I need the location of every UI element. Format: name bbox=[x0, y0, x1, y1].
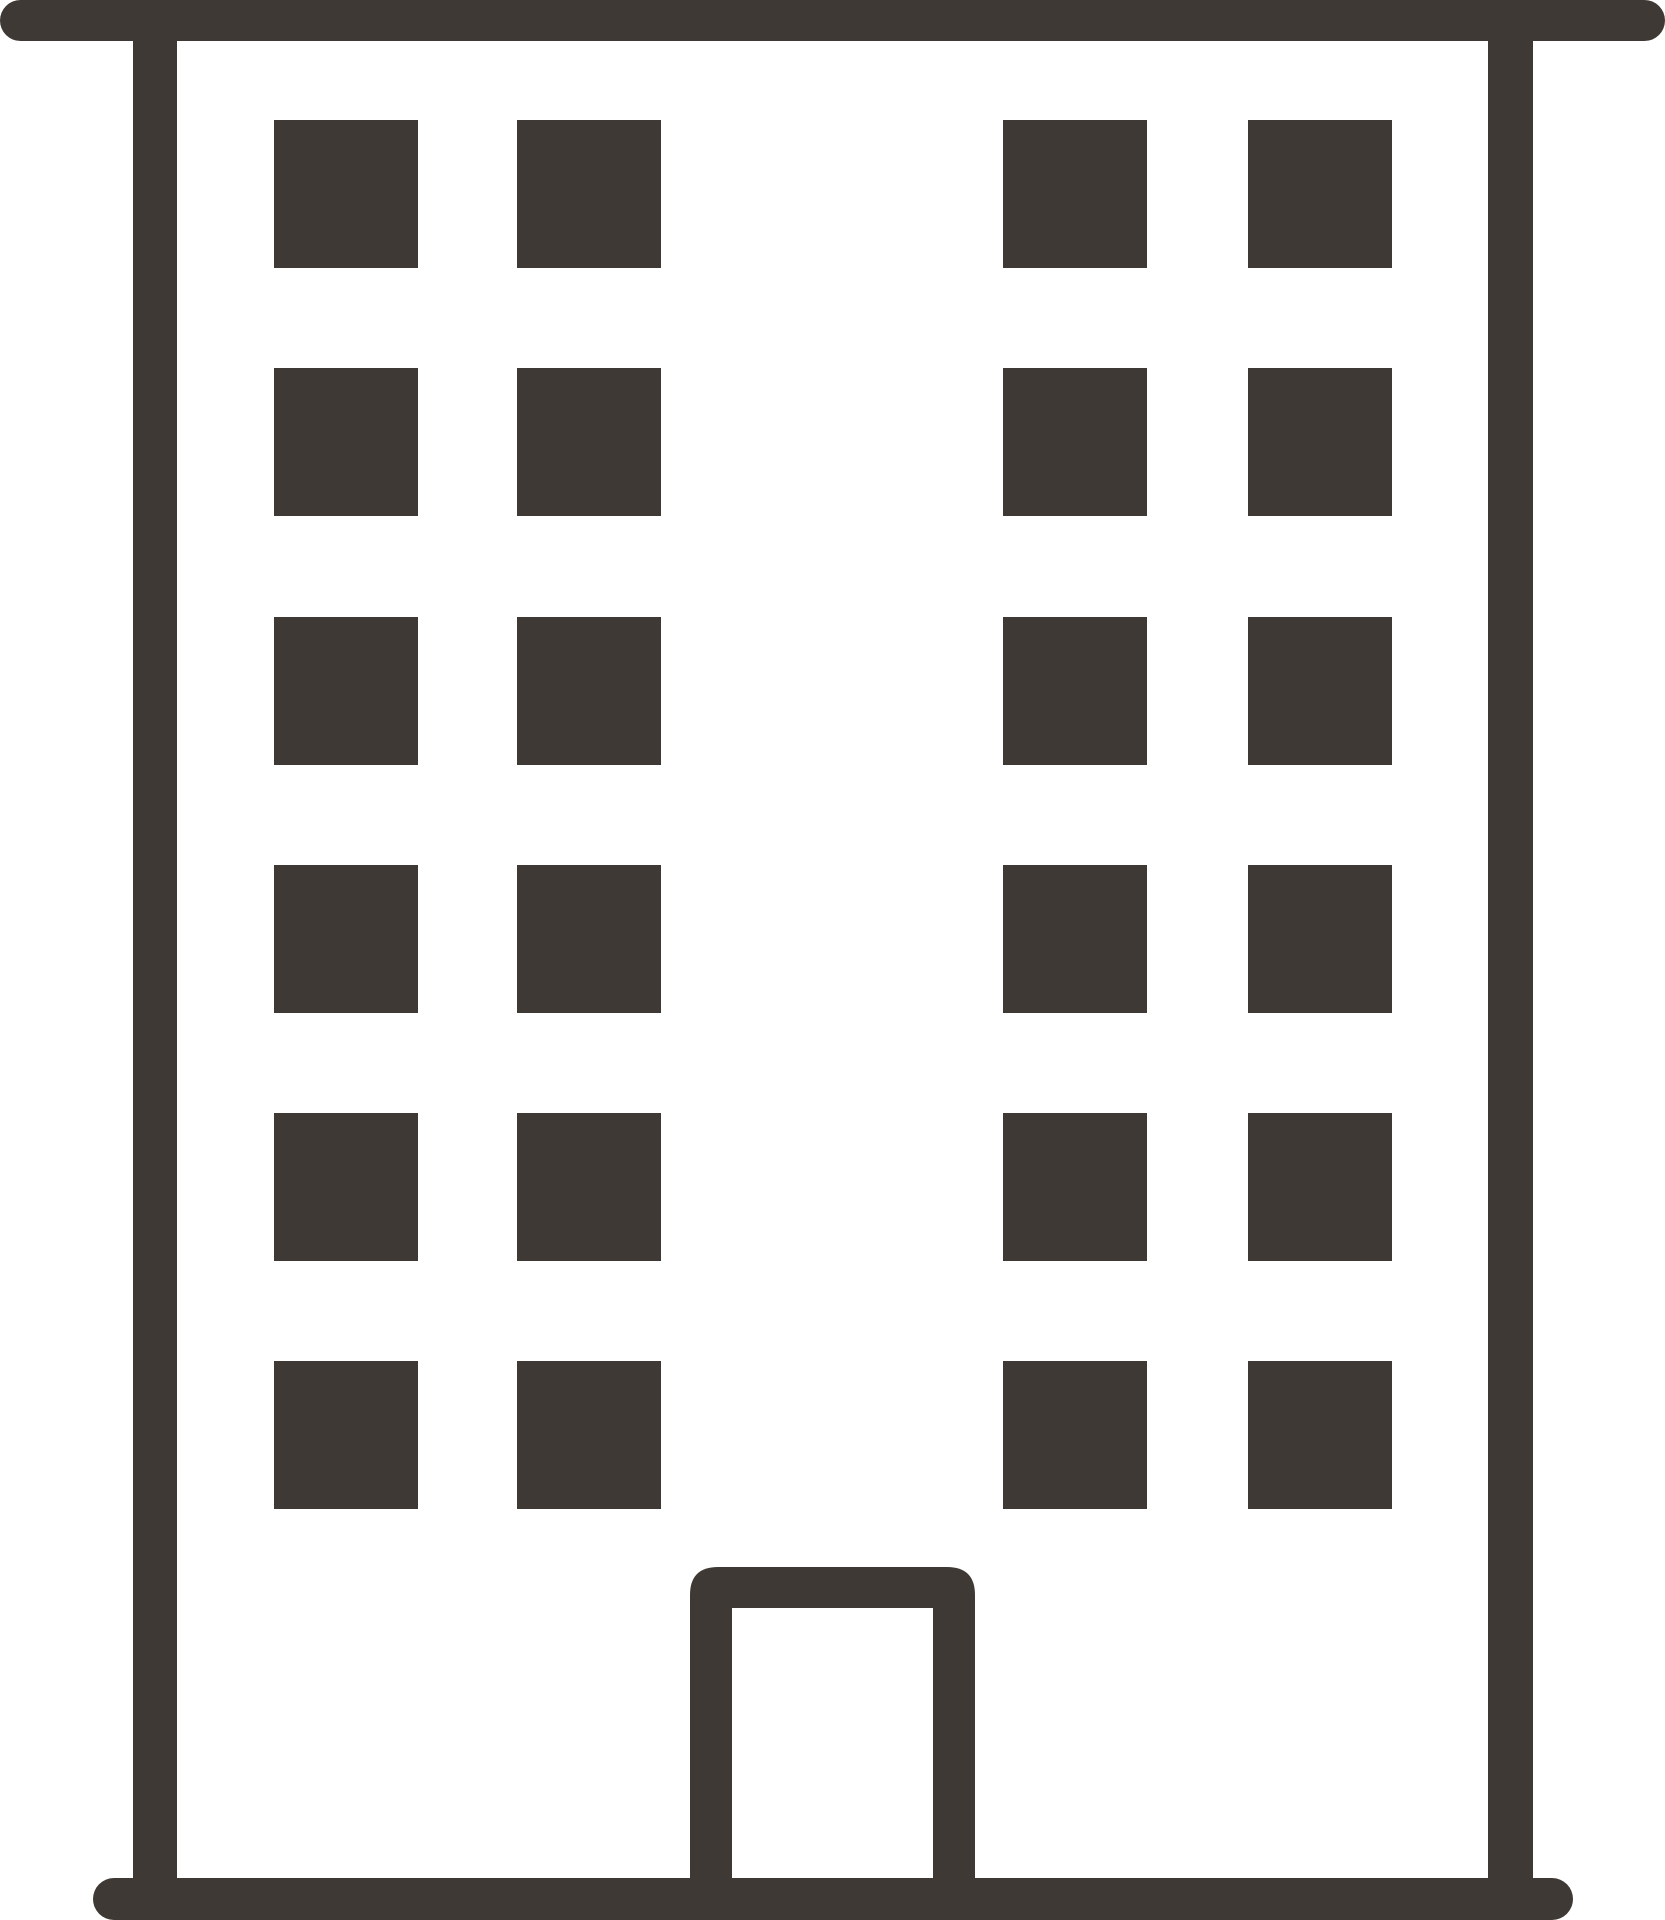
door-opening bbox=[732, 1608, 933, 1920]
window-r1-c2 bbox=[517, 120, 661, 268]
window-r5-c4 bbox=[1248, 1113, 1392, 1261]
right-wall bbox=[1488, 21, 1533, 1900]
building-icon bbox=[0, 0, 1665, 1920]
window-r2-c4 bbox=[1248, 368, 1392, 516]
window-r6-c1 bbox=[274, 1361, 418, 1509]
window-r6-c3 bbox=[1003, 1361, 1147, 1509]
window-r1-c3 bbox=[1003, 120, 1147, 268]
window-r5-c2 bbox=[517, 1113, 661, 1261]
window-r4-c1 bbox=[274, 865, 418, 1013]
building-icon-canvas bbox=[0, 0, 1665, 1920]
window-r6-c4 bbox=[1248, 1361, 1392, 1509]
window-r4-c2 bbox=[517, 865, 661, 1013]
window-r6-c2 bbox=[517, 1361, 661, 1509]
left-wall bbox=[133, 21, 177, 1900]
window-r3-c1 bbox=[274, 617, 418, 765]
window-r2-c2 bbox=[517, 368, 661, 516]
window-r2-c1 bbox=[274, 368, 418, 516]
window-r1-c1 bbox=[274, 120, 418, 268]
window-r3-c2 bbox=[517, 617, 661, 765]
building-structure bbox=[21, 21, 1645, 1920]
window-r3-c3 bbox=[1003, 617, 1147, 765]
window-r4-c3 bbox=[1003, 865, 1147, 1013]
window-r2-c3 bbox=[1003, 368, 1147, 516]
windows-grid bbox=[274, 120, 1392, 1509]
window-r5-c3 bbox=[1003, 1113, 1147, 1261]
window-r5-c1 bbox=[274, 1113, 418, 1261]
window-r1-c4 bbox=[1248, 120, 1392, 268]
window-r4-c4 bbox=[1248, 865, 1392, 1013]
window-r3-c4 bbox=[1248, 617, 1392, 765]
